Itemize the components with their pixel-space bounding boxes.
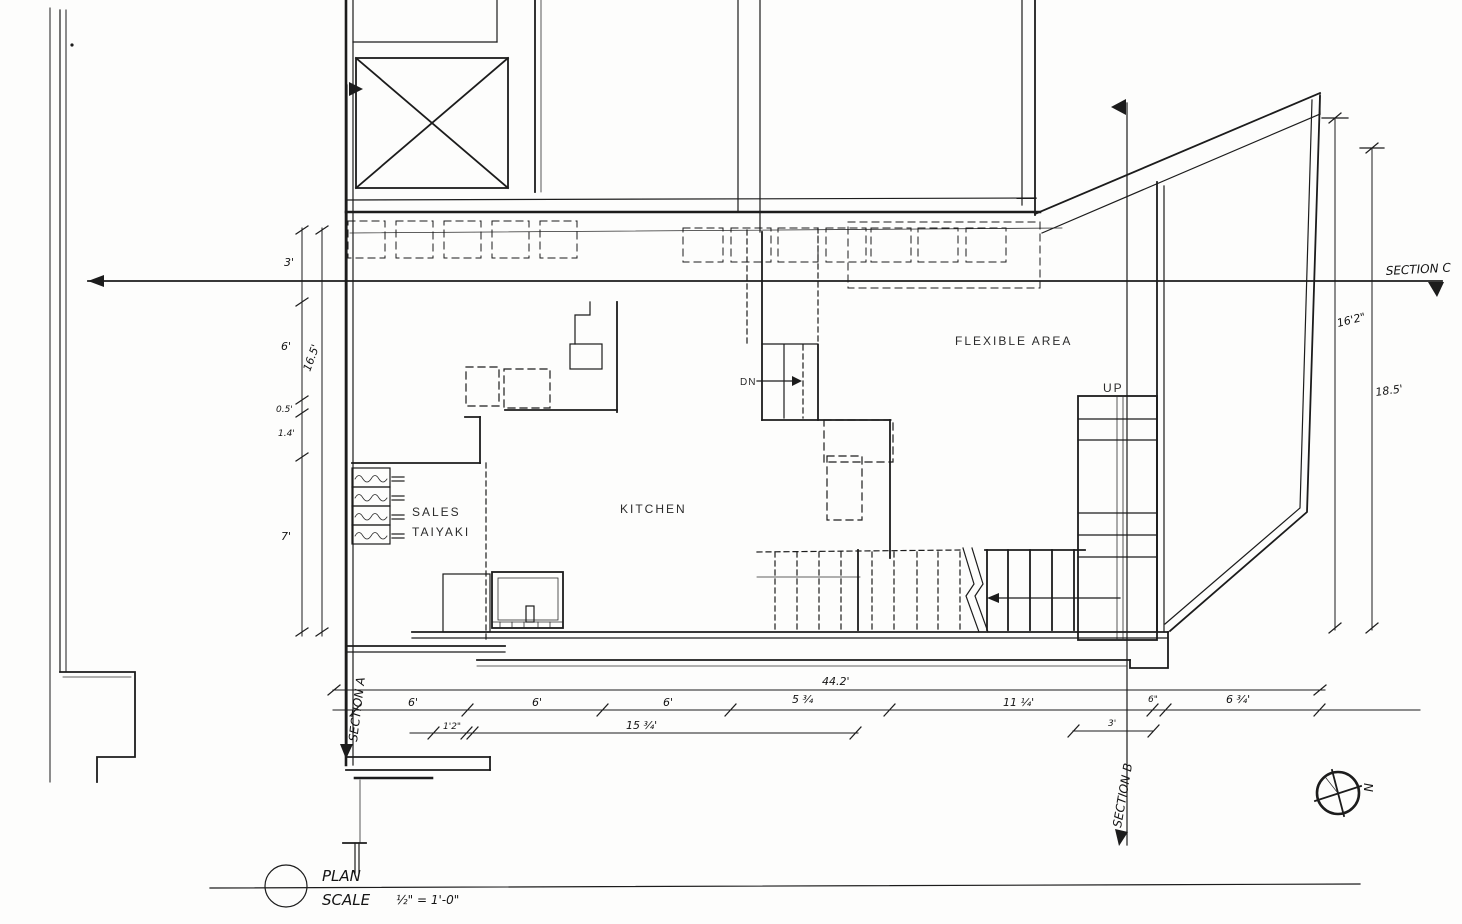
section-c-right-arrow <box>1428 282 1444 297</box>
dim-bottom-6: 6" <box>1148 695 1158 705</box>
dim-left-5: 1.4' <box>278 429 295 439</box>
bottom-dimension-strings: 44.2' 6' 6' 6' 5 ¾ 11 ¼' 6" 6 ¾' 1'2" 15… <box>328 675 1420 739</box>
dashed-square-row <box>348 221 1040 288</box>
dim-sub-1: 1'2" <box>443 722 461 732</box>
title-bubble <box>265 865 307 907</box>
left-dimension-column: 3' 6' 16.5' 0.5' 1.4' 7' <box>276 226 328 636</box>
plan-title: PLAN <box>322 867 361 885</box>
section-c-left-arrow <box>88 275 104 287</box>
entry-slab <box>343 757 490 873</box>
sales-label-line1: SALES <box>412 505 461 519</box>
floor-plan-drawing: SECTION C SECTION A SECTION B <box>0 0 1462 924</box>
down-direction-arrow <box>792 376 802 386</box>
kitchen-label: KITCHEN <box>620 502 687 516</box>
kitchen-sink-counter <box>492 572 563 628</box>
ink-dot <box>70 43 73 46</box>
kitchen-cabinet <box>443 574 490 632</box>
sink-faucet <box>526 606 534 622</box>
scale-value: ½" = 1'-0" <box>396 893 459 907</box>
up-stair: UP <box>1078 381 1157 640</box>
down-stair: DN <box>740 228 893 558</box>
dim-bottom-2: 6' <box>532 696 542 709</box>
dim-right-2: 18.5' <box>1375 382 1404 399</box>
dim-bottom-3: 6' <box>663 696 673 709</box>
title-block: PLAN SCALE ½" = 1'-0" <box>210 865 1360 909</box>
dim-bottom-4: 5 ¾ <box>792 693 813 706</box>
stair-direction-arrow <box>987 593 999 603</box>
dim-left-2: 6' <box>281 340 291 353</box>
dim-bottom-1: 6' <box>408 696 418 709</box>
dim-left-3: 16.5' <box>301 343 323 373</box>
down-stair-label: DN <box>740 377 756 388</box>
elevator-shaft <box>346 0 541 765</box>
sales-label-line2: TAIYAKI <box>412 525 470 539</box>
dim-sub-2: 15 ¾' <box>626 719 657 732</box>
section-a-line: SECTION A <box>340 82 368 759</box>
section-b-bottom-arrow <box>1115 829 1128 846</box>
kitchen-area: KITCHEN <box>443 302 687 632</box>
bottom-walls <box>346 632 1168 668</box>
dim-left-1: 3' <box>284 256 294 269</box>
sales-taiyaki-area: SALES TAIYAKI <box>352 417 486 640</box>
scale-label: SCALE <box>322 891 371 909</box>
dim-bottom-5: 11 ¼' <box>1003 696 1034 709</box>
section-c-label: SECTION C <box>1385 261 1451 278</box>
north-label: N <box>1361 783 1375 792</box>
bottom-stair-run <box>757 548 1120 632</box>
dashed-zone-outline <box>848 222 1040 288</box>
right-dimension-column: 16'2" 18.5' <box>1322 113 1404 633</box>
floor-plan-page: SECTION C SECTION A SECTION B <box>0 0 1462 924</box>
section-a-label: SECTION A <box>346 676 368 742</box>
dim-right-1: 16'2" <box>1336 310 1367 330</box>
dim-bottom-7: 6 ¾' <box>1226 693 1250 706</box>
section-b-label: SECTION B <box>1110 762 1135 828</box>
dim-left-6: 7' <box>281 530 291 543</box>
taiyaki-grill-boxes <box>352 468 404 544</box>
dim-left-4: 0.5' <box>276 405 293 415</box>
dim-sub-3: 3' <box>1108 719 1116 729</box>
flexible-area-label: FLEXIBLE AREA <box>955 334 1072 348</box>
stair-break-line <box>963 548 979 632</box>
north-arrow: N <box>1315 770 1375 816</box>
section-b-top-flag <box>1111 99 1126 115</box>
up-stair-label: UP <box>1103 381 1124 395</box>
dim-bottom-total: 44.2' <box>822 675 850 688</box>
site-boundary-lines <box>50 8 135 782</box>
upper-structure-walls <box>346 0 1062 233</box>
